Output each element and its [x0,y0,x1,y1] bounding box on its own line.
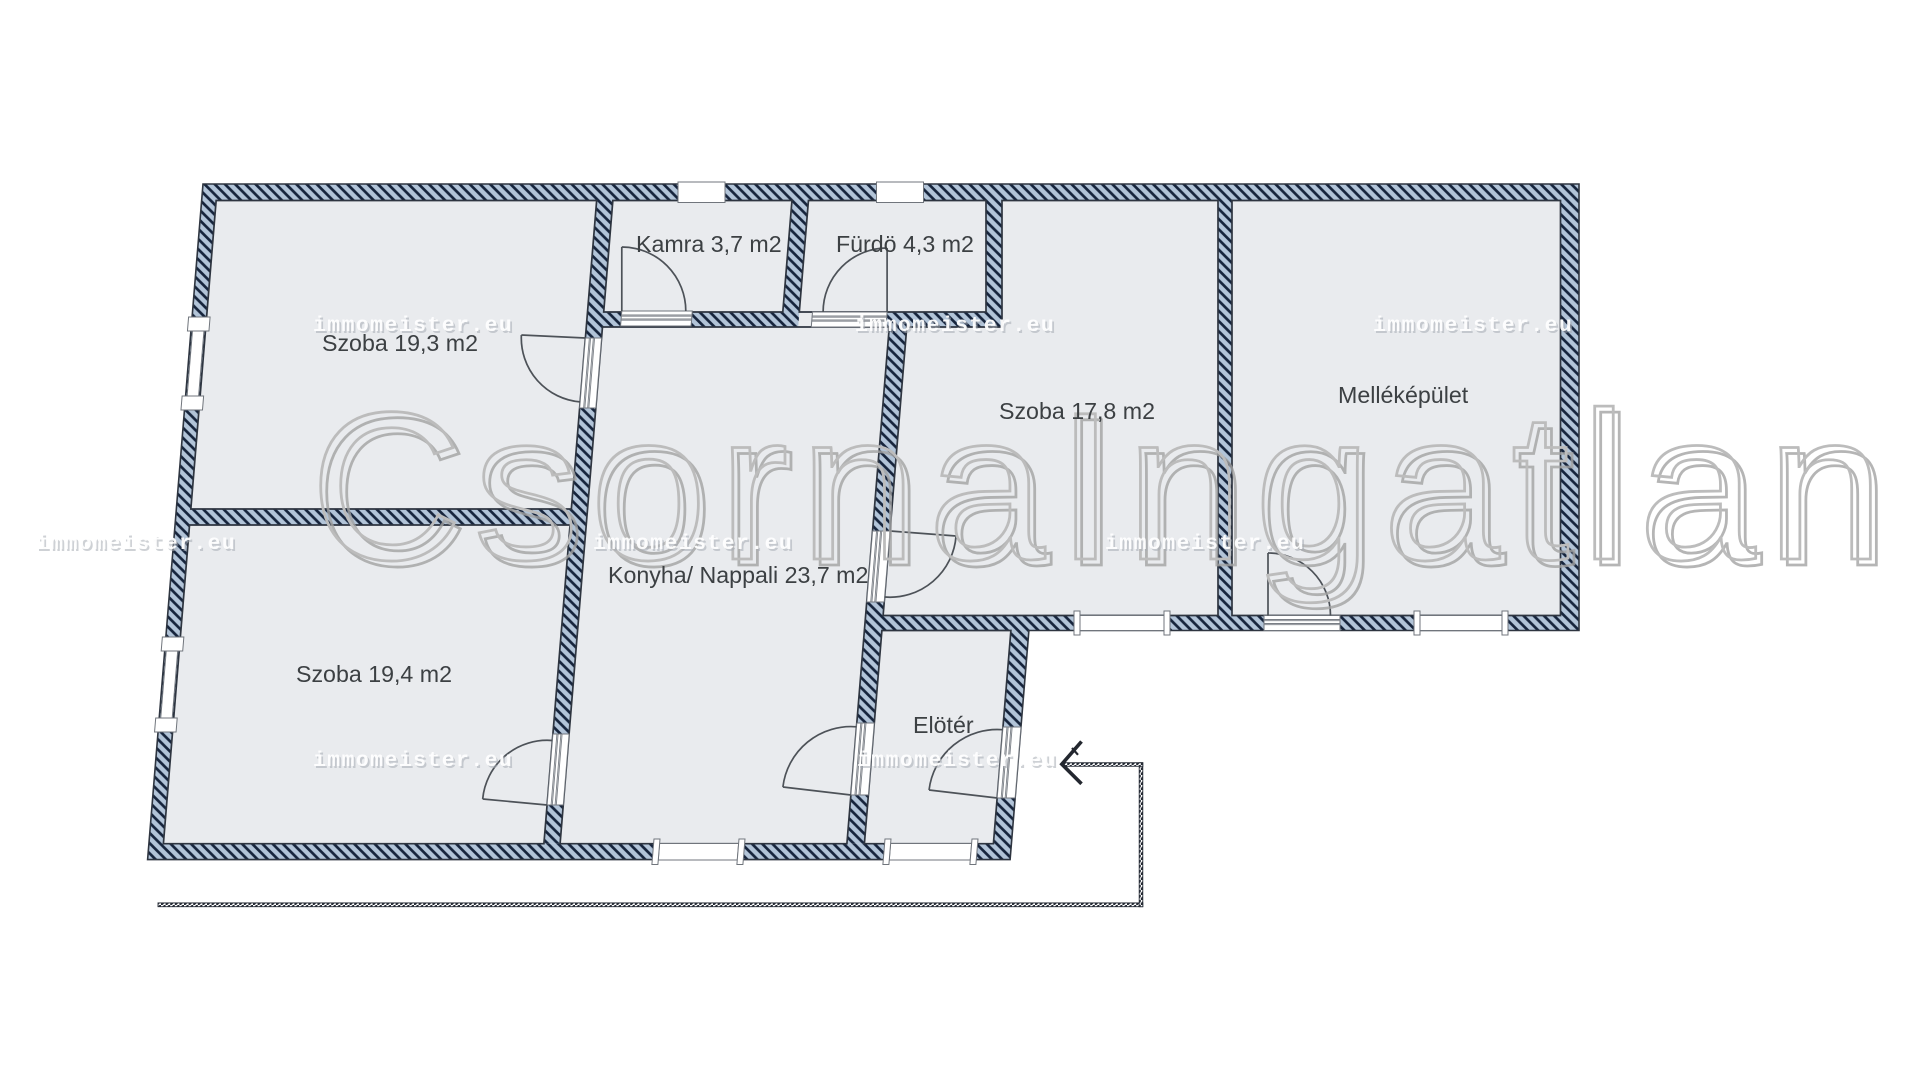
svg-text:Szoba 19,3 m2: Szoba 19,3 m2 [322,330,478,356]
svg-text:immomeister.eu: immomeister.eu [1373,314,1573,338]
svg-text:immomeister.eu: immomeister.eu [857,749,1057,773]
svg-text:Melléképület: Melléképület [1338,382,1469,408]
svg-text:Szoba 17,8 m2: Szoba 17,8 m2 [999,398,1155,424]
svg-text:immomeister.eu: immomeister.eu [36,532,236,556]
svg-text:Fürdö 4,3 m2: Fürdö 4,3 m2 [836,231,974,257]
svg-text:immomeister.eu: immomeister.eu [313,749,513,773]
svg-text:immomeister.eu: immomeister.eu [1105,532,1305,556]
svg-text:Szoba 19,4 m2: Szoba 19,4 m2 [296,661,452,687]
svg-text:Konyha/ Nappali 23,7 m2: Konyha/ Nappali 23,7 m2 [608,562,868,588]
svg-text:immomeister.eu: immomeister.eu [855,314,1055,338]
svg-text:Elötér: Elötér [913,712,974,738]
svg-text:Kamra 3,7 m2: Kamra 3,7 m2 [636,231,782,257]
svg-text:immomeister.eu: immomeister.eu [593,532,793,556]
